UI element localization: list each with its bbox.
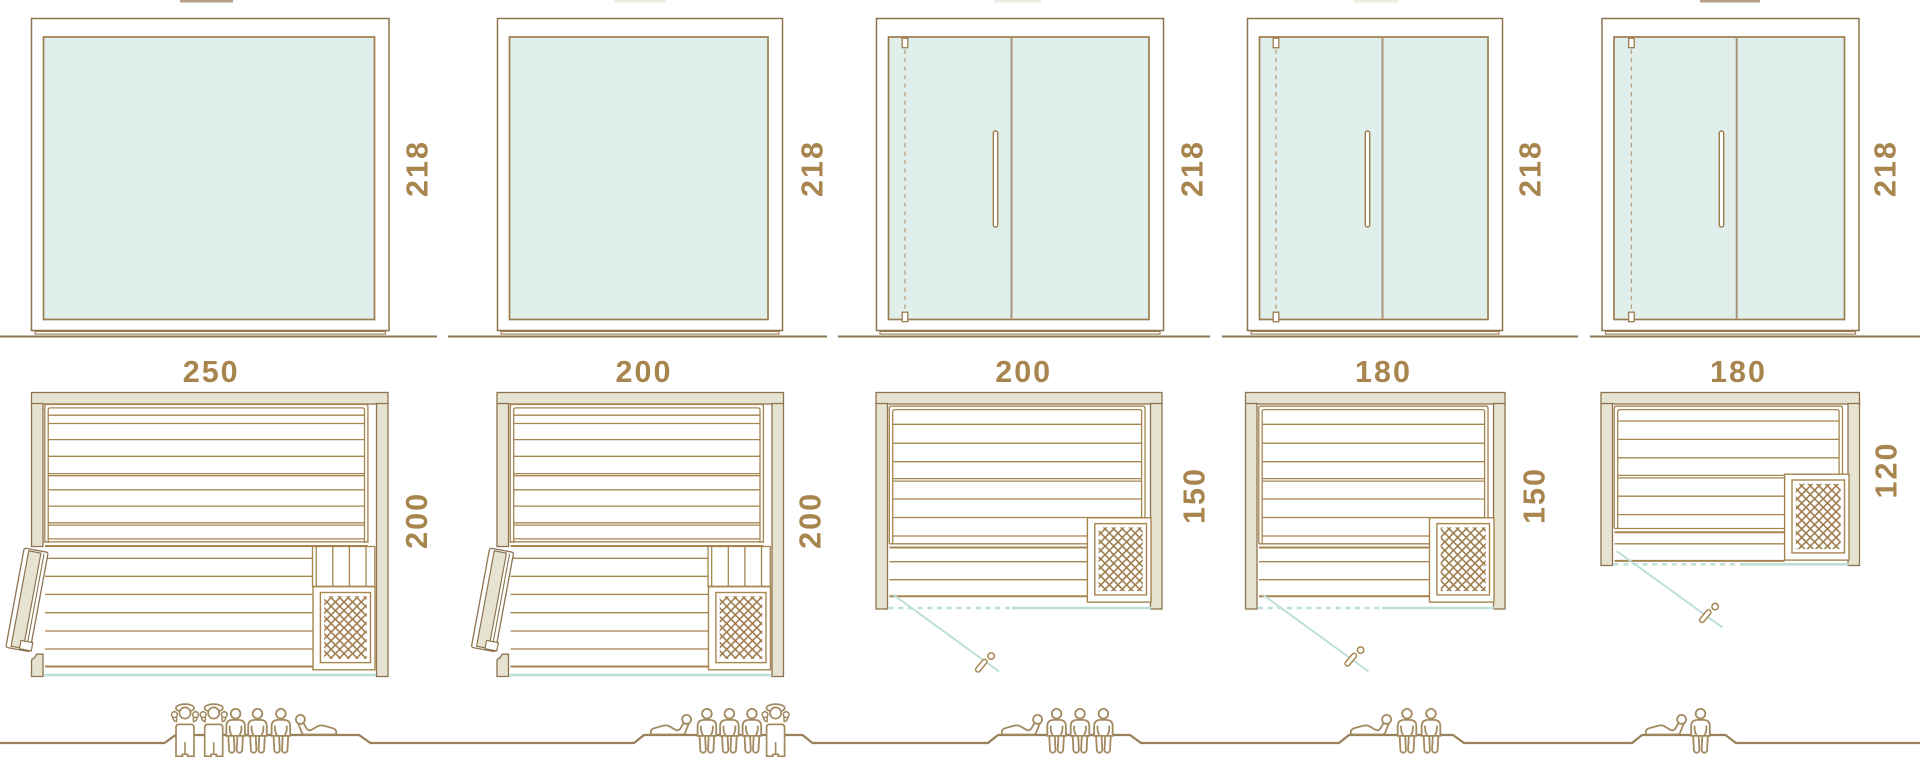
svg-text:218: 218: [400, 140, 434, 197]
svg-text:200: 200: [616, 355, 673, 389]
svg-text:200: 200: [793, 492, 827, 549]
svg-text:180: 180: [1710, 355, 1767, 389]
svg-text:150: 150: [1517, 467, 1551, 524]
svg-text:200: 200: [400, 492, 434, 549]
svg-text:250: 250: [183, 355, 240, 389]
svg-text:218: 218: [1869, 140, 1903, 197]
svg-text:218: 218: [796, 140, 830, 197]
svg-text:150: 150: [1178, 467, 1212, 524]
svg-text:120: 120: [1869, 442, 1903, 499]
svg-text:218: 218: [1176, 140, 1210, 197]
svg-text:180: 180: [1355, 355, 1412, 389]
svg-text:218: 218: [1514, 140, 1548, 197]
svg-text:200: 200: [995, 355, 1052, 389]
